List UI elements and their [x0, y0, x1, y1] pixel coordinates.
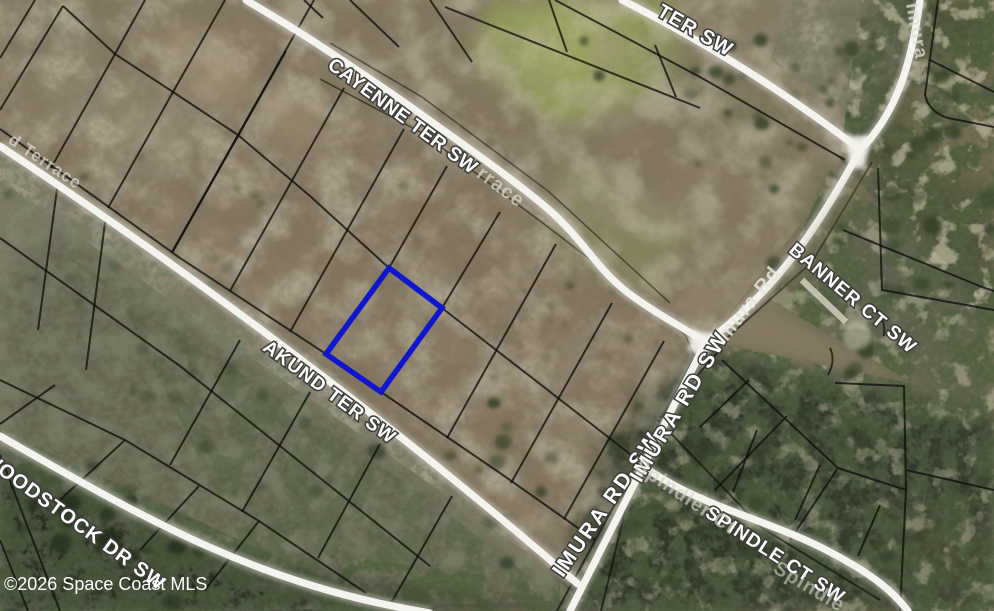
svg-text:©2026 Space Coast MLS: ©2026 Space Coast MLS: [4, 574, 207, 594]
